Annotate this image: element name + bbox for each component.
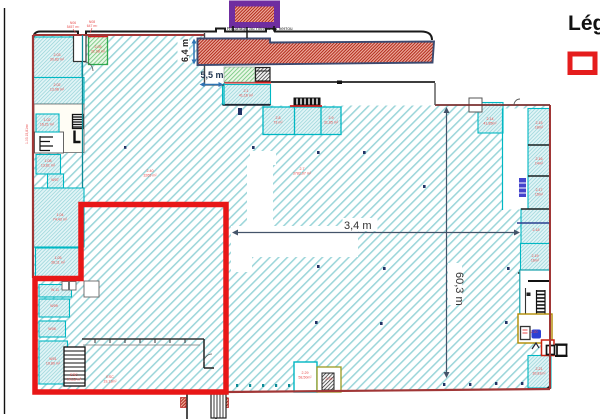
- svg-text:18m²: 18m²: [535, 126, 544, 130]
- svg-text:60,3 m: 60,3 m: [453, 272, 465, 306]
- svg-text:1.03 15,81m²: 1.03 15,81m²: [25, 123, 29, 144]
- svg-text:Légende: Légende: [568, 12, 600, 35]
- svg-text:2.20: 2.20: [531, 330, 538, 334]
- svg-text:30,81m²: 30,81m²: [532, 372, 546, 376]
- svg-text:ESC: ESC: [70, 373, 78, 377]
- svg-text:W07: W07: [51, 178, 58, 182]
- svg-text:1.04: 1.04: [57, 213, 64, 217]
- svg-text:W08: W08: [48, 327, 55, 331]
- svg-text:W01: W01: [49, 357, 56, 361]
- svg-text:41,85m²: 41,85m²: [483, 122, 497, 126]
- svg-text:16m²: 16m²: [531, 259, 540, 263]
- svg-text:58,50m²: 58,50m²: [298, 376, 312, 380]
- svg-text:2.02: 2.02: [54, 83, 61, 87]
- svg-text:19,13m²: 19,13m²: [103, 380, 117, 384]
- svg-text:2.16: 2.16: [536, 157, 543, 161]
- svg-text:ESC: ESC: [106, 375, 114, 379]
- svg-text:41,16 m²: 41,16 m²: [239, 94, 254, 98]
- svg-text:2.18: 2.18: [533, 228, 540, 232]
- svg-text:2.15: 2.15: [536, 121, 543, 125]
- svg-text:5,5 m: 5,5 m: [200, 70, 223, 80]
- svg-text:2.8: 2.8: [276, 116, 281, 120]
- svg-text:2.40: 2.40: [147, 169, 154, 173]
- svg-text:19,80 m²: 19,80 m²: [46, 362, 61, 366]
- svg-text:6,4 m: 6,4 m: [180, 39, 190, 62]
- svg-text:647 m²: 647 m²: [87, 24, 98, 28]
- svg-text:2.19: 2.19: [532, 254, 539, 258]
- svg-text:19,13 m²: 19,13 m²: [67, 378, 82, 382]
- svg-text:16,21 m²: 16,21 m²: [40, 123, 55, 127]
- svg-text:74,43 m²: 74,43 m²: [53, 218, 68, 222]
- svg-text:13,81 m²: 13,81 m²: [41, 164, 56, 168]
- svg-text:1.02: 1.02: [44, 118, 51, 122]
- svg-text:2.03: 2.03: [54, 53, 61, 57]
- svg-text:2.14: 2.14: [487, 117, 494, 121]
- svg-text:5457 m²: 5457 m²: [67, 25, 80, 29]
- svg-text:2.05: 2.05: [95, 45, 102, 49]
- svg-text:W.11: W.11: [51, 288, 59, 292]
- svg-text:2.29: 2.29: [302, 371, 309, 375]
- svg-text:14m²: 14m²: [535, 162, 544, 166]
- svg-text:2.7: 2.7: [300, 167, 305, 171]
- svg-text:30,82 m²: 30,82 m²: [50, 58, 65, 62]
- svg-text:15m²: 15m²: [535, 193, 544, 197]
- svg-text:31,85 m²: 31,85 m²: [324, 121, 339, 125]
- svg-text:W09: W09: [50, 304, 57, 308]
- svg-text:31,08 m²: 31,08 m²: [91, 50, 106, 54]
- svg-text:2.21: 2.21: [536, 367, 543, 371]
- svg-text:2.17: 2.17: [536, 188, 543, 192]
- svg-text:1.08: 1.08: [45, 159, 52, 163]
- svg-text:13,96 m²: 13,96 m²: [50, 88, 65, 92]
- svg-text:2.1: 2.1: [244, 89, 249, 93]
- svg-text:Régalage au niveau du verrou: Régalage au niveau du verrou: [227, 26, 293, 31]
- svg-text:36,11 m²: 36,11 m²: [51, 261, 66, 265]
- svg-text:73 m²: 73 m²: [273, 121, 283, 125]
- svg-text:3782,07 m²: 3782,07 m²: [293, 172, 312, 176]
- svg-text:1.05: 1.05: [55, 256, 62, 260]
- svg-text:2.30: 2.30: [326, 377, 333, 381]
- svg-text:3,4 m: 3,4 m: [344, 220, 372, 232]
- svg-text:2.9: 2.9: [329, 116, 334, 120]
- svg-text:3265 m²: 3265 m²: [143, 174, 157, 178]
